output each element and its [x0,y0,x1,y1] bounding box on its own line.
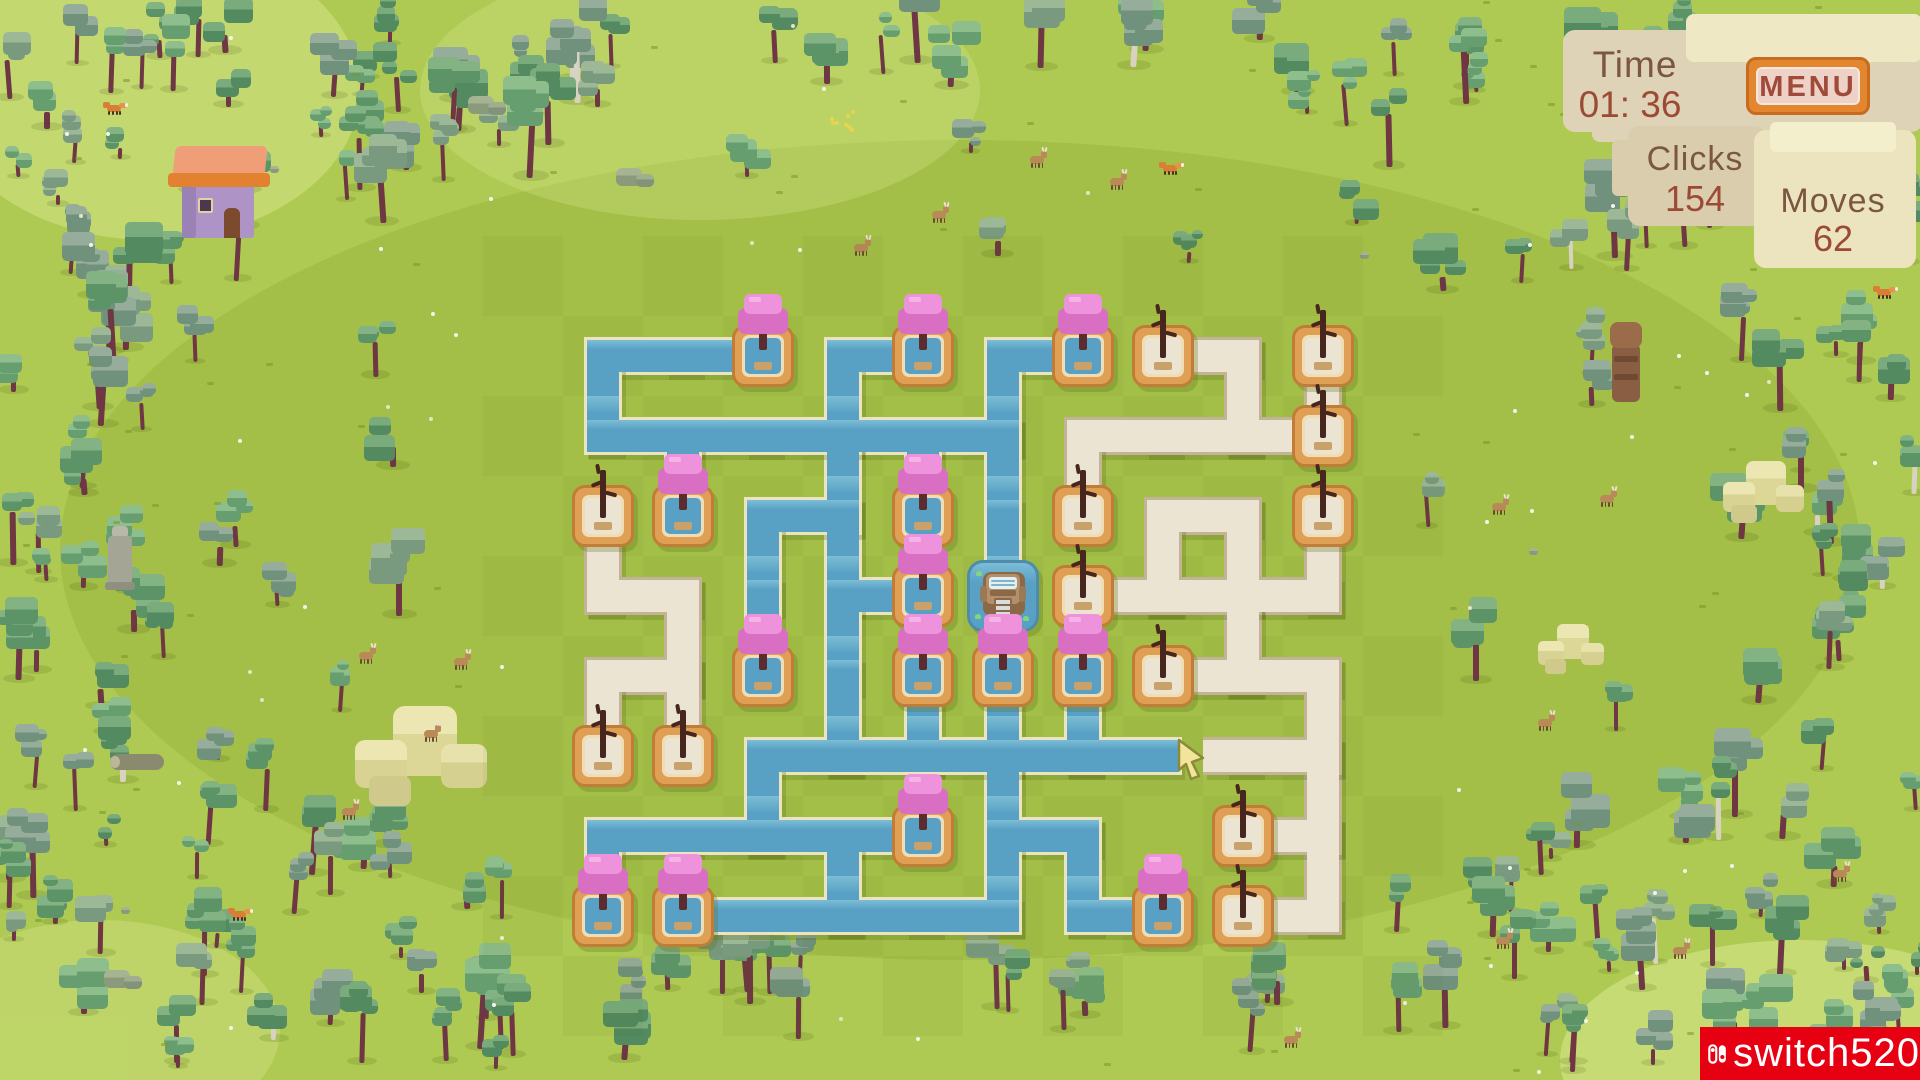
tree-canopy [1723,994,1744,1011]
shape [1614,356,1638,362]
tree-canopy [6,911,26,929]
fox-leg [108,111,110,115]
tree-canopy [162,14,190,39]
grass-tuft [187,614,194,617]
tree-canopy [1510,909,1531,926]
pipe-fill [747,580,779,612]
pipe-fill [1147,500,1179,532]
planter-soil [594,522,612,530]
pipe-cell[interactable] [803,556,883,636]
tree-trunk [1512,937,1517,979]
tree-canopy [1882,964,1904,981]
pipe-cell[interactable] [1203,556,1283,636]
grass-tuft [1495,39,1502,42]
tree-canopy [1842,320,1871,342]
tree-canopy [970,137,981,146]
bloom-highlight [749,617,761,622]
tree-canopy [98,716,131,740]
pipe-cell[interactable] [963,796,1043,876]
pipe-cell[interactable] [1203,636,1283,716]
tree-canopy [345,106,366,122]
tree-canopy [439,119,457,132]
dead-tree-cell [1043,476,1123,556]
dead-tree-cell [643,716,723,796]
planter-soil [1074,682,1092,690]
pipe-fill [827,820,859,852]
tree-canopy [1820,523,1838,537]
flower [79,214,83,218]
checker-cell [483,236,563,316]
pipe-cell[interactable] [963,396,1043,476]
pipe-cell[interactable] [1043,796,1123,876]
pipe-cell[interactable] [643,556,723,636]
deer-head [1295,1031,1301,1038]
deer-head [1503,498,1509,505]
grass-tuft [358,425,365,428]
deer-leg [350,815,352,820]
deer-leg [1285,1043,1287,1048]
grass-tuft [99,811,106,814]
tree-trunk [1490,915,1496,937]
pipe-cell[interactable] [1203,316,1283,396]
pipe-cell[interactable] [1283,636,1363,716]
grass-tuft [35,919,42,922]
fox-leg [1164,171,1166,175]
tree-canopy [1463,857,1492,878]
pipe-cell[interactable] [723,876,803,956]
tree-canopy [1850,958,1864,968]
pipe-cell[interactable] [803,396,883,476]
deer-leg [1546,726,1548,731]
grass-tuft [1483,441,1490,444]
flower [1677,354,1681,358]
pipe-cell[interactable] [803,476,883,556]
tree-canopy [550,19,574,38]
tree-canopy [177,305,198,323]
house-wall-shade [182,184,196,238]
tree-canopy [1593,938,1610,951]
fox-leg [1172,171,1174,175]
tree-canopy [124,29,143,44]
pump-rung [996,610,1010,612]
pipe-cell[interactable] [1203,476,1283,556]
tree-trunk [195,852,199,879]
tree-trunk [1651,1049,1655,1065]
tree-canopy [369,134,398,160]
bloom-highlight [909,777,921,782]
planter-soil [1074,362,1092,370]
tree-trunk [609,34,614,67]
tree-canopy [1472,876,1505,904]
fox-leg [1882,295,1884,299]
pipe-fill [587,580,619,612]
deer-leg [1539,726,1541,731]
tree-canopy [165,41,185,57]
flower [1468,606,1472,610]
tree-canopy [98,827,112,839]
tree-canopy [400,70,417,83]
bloom-trunk [919,572,927,590]
statue-body [108,536,132,584]
tree-canopy [1121,0,1153,25]
tree-trunk [824,65,830,84]
pipe-cell[interactable] [883,876,963,956]
deer-leg [1118,185,1120,190]
pipe-fill [907,900,939,932]
checker-cell [1043,956,1123,1036]
watermark-text: switch520 [1733,1031,1920,1076]
house-roof-band [168,173,270,187]
planter-soil [914,522,932,530]
switch-logo-icon [1708,1032,1727,1076]
bloom-tree-cell [883,316,963,396]
pipe-fill [747,740,779,772]
tree-canopy [1592,884,1608,896]
rock [488,102,506,115]
dead-tree-cell [1203,796,1283,876]
fox-head [1159,162,1166,168]
pipe-cell[interactable] [1043,876,1123,956]
house-door [224,208,240,238]
tree-canopy [1828,469,1845,482]
bloom-trunk [919,332,927,350]
pipe-cell[interactable] [1123,476,1203,556]
grass-tuft [87,363,94,366]
tree-trunk [327,856,332,895]
bloom-highlight [1069,297,1081,302]
tree-canopy [91,327,111,344]
deer-head [1041,151,1047,158]
tree-canopy [254,993,273,1007]
grass-tuft [1271,1050,1278,1053]
tree-trunk [1614,701,1618,731]
tree-trunk [80,479,87,495]
grass-tuft [1249,69,1256,72]
deer-leg [1493,510,1495,515]
pipe-cell[interactable] [1283,876,1363,956]
tree-canopy [224,0,253,23]
pump-screen-line [991,580,1015,582]
grass-tuft [1484,957,1491,960]
grass-tuft [113,521,120,524]
pipe-cell[interactable] [1203,396,1283,476]
rock [636,174,654,187]
grass-tuft [152,504,159,507]
flower [386,405,390,409]
pipe-cell[interactable] [803,876,883,956]
tree-canopy [1813,718,1833,735]
tree-canopy [1742,289,1757,302]
pipe-fill [667,820,699,852]
pipe-fill [827,740,859,772]
dead-tree-cell [563,476,643,556]
pipe-cell[interactable] [1043,716,1123,796]
tree-trunk [72,768,78,811]
fox-head [228,908,235,914]
tree-canopy [1632,907,1653,925]
deer-leg [1508,944,1510,949]
flower [260,698,264,702]
tree-canopy [262,562,287,580]
tree-trunk [108,50,114,93]
fox-leg [1886,295,1888,299]
tree-canopy [1817,480,1844,501]
deer-head [1121,173,1127,180]
planter-soil [754,362,772,370]
tree-trunk [1473,639,1479,681]
pipe-cell[interactable] [803,796,883,876]
tree-canopy [879,12,892,23]
grass-tuft [75,157,82,160]
planter-soil [1074,522,1092,530]
tree-canopy [202,781,219,796]
boulder [1545,659,1566,674]
tree-canopy [1340,180,1361,195]
tree-canopy [1605,681,1622,694]
pipe-cell[interactable] [1123,556,1203,636]
tree-canopy [952,21,982,45]
dead-tree-cell [1283,476,1363,556]
pipe-fill [667,580,699,612]
tree-canopy [1586,307,1605,322]
tree-trunk [494,1055,498,1070]
tree-canopy [76,752,94,769]
tree-canopy [231,69,252,88]
clicks-value: 154 [1632,178,1758,220]
tree-canopy [1819,601,1845,623]
pipe-cell[interactable] [563,556,643,636]
tree-trunk [394,77,401,113]
fox-leg [1175,171,1177,175]
planter-soil [1314,522,1332,530]
tree-canopy [182,836,195,847]
pipe-fill [987,340,1019,372]
checker-cell [963,236,1043,316]
planter-soil [1154,362,1172,370]
tree-canopy [1572,1004,1588,1018]
flower [750,241,754,245]
deer-head [1844,865,1850,872]
bloom-trunk [1079,652,1087,670]
bloom-trunk [679,492,687,510]
puzzle-grid [563,316,1363,956]
pipe-fill [1067,420,1099,452]
pipe-fill [747,900,779,932]
pipe-cell[interactable] [723,396,803,476]
game-scene: Time 01: 36 MENU Clicks 154 Moves 62 swi… [0,0,1920,1080]
flower [500,665,504,669]
tree-canopy [18,512,35,525]
tree-canopy [107,814,121,825]
tree-trunk [1386,114,1393,167]
bloom-trunk [1159,892,1167,910]
deer-leg [1681,954,1683,959]
bloom-tree-cell [563,876,643,956]
pipe-cell[interactable] [563,396,643,476]
tree-canopy [1867,556,1887,572]
fox-leg [1168,171,1170,175]
deer-leg [1111,185,1113,190]
pipe-cell[interactable] [563,636,643,716]
pipe-fill [827,900,859,932]
tree-canopy [579,0,606,21]
tree-canopy [199,522,220,541]
pipe-cell[interactable] [963,876,1043,956]
tree-canopy [928,25,950,43]
checker-cell [1363,476,1443,556]
tree-canopy [1759,974,1793,1003]
yellow-flower [831,121,835,125]
tree-trunk [9,512,15,565]
sparkle [1023,616,1029,621]
pipe-fill [1307,740,1339,772]
checker-cell [1123,236,1203,316]
pipe-cell[interactable] [963,716,1043,796]
pipe-cell[interactable] [1043,396,1123,476]
log-end [110,756,120,768]
tree-canopy [1247,0,1273,6]
pipe-fill [667,660,699,692]
bloom-tree-cell [723,316,803,396]
tree-canopy [1752,329,1779,354]
tree-canopy [81,541,99,556]
planter-soil [754,682,772,690]
bloom-tree-cell [1043,316,1123,396]
tree-canopy [1505,239,1525,253]
menu-button[interactable]: MENU [1746,57,1870,115]
tree-canopy [503,76,536,105]
deer-leg [425,737,427,742]
pipe-fill [1067,740,1099,772]
flower [916,1037,920,1041]
tree-canopy [485,860,503,876]
tree-canopy [2,493,23,512]
fox-tail-tip [250,909,253,913]
tree-canopy [512,35,529,49]
dead-tree-cell [1123,636,1203,716]
pipe-cell[interactable] [1283,556,1363,636]
tree-canopy [883,25,900,37]
bloom-highlight [589,857,601,862]
tree-canopy [120,505,143,523]
tree-canopy [1827,938,1849,956]
bloom-highlight [909,537,921,542]
flower [1457,788,1461,792]
pipe-cell[interactable] [1203,716,1283,796]
checker-cell [483,716,563,796]
pipe-fill [987,740,1019,772]
pipe-cell[interactable] [963,476,1043,556]
pipe-fill [587,420,619,452]
checker-cell [1363,796,1443,876]
deer-head [370,647,376,654]
checker-cell [643,236,723,316]
deer-leg [462,665,464,670]
tree-canopy [1684,771,1701,785]
tree-canopy [43,875,58,886]
tree-canopy [1884,540,1900,554]
deer-leg [1296,1043,1298,1048]
fox-leg [1889,295,1891,299]
pipe-cell[interactable] [803,316,883,396]
tree-canopy [759,6,780,23]
pipe-cell[interactable] [1123,396,1203,476]
flower [1537,1070,1541,1074]
bloom-tree-cell [643,876,723,956]
tree-canopy [0,354,22,373]
pipe-cell[interactable] [803,716,883,796]
fox-leg [237,917,239,921]
grass-tuft [651,46,658,49]
pipe-cell[interactable] [723,716,803,796]
tree-canopy [255,738,274,753]
flower [1767,380,1771,384]
pipe-cell[interactable] [723,796,803,876]
tree-canopy [1821,827,1855,852]
tree-trunk [545,101,552,145]
time-value: 01: 36 [1570,84,1690,126]
tree-canopy [73,415,90,429]
checker-cell [1363,316,1443,396]
tree-canopy [1745,887,1765,902]
time-label: Time [1583,44,1687,86]
pipe-cell[interactable] [963,316,1043,396]
pipe-fill [747,500,779,532]
flower [822,87,826,91]
tree-canopy [1497,856,1518,874]
pipe-fill [667,420,699,452]
tree-canopy [364,435,394,462]
pipe-cell[interactable] [803,636,883,716]
pipe-cell[interactable] [563,316,643,396]
fox-leg [116,111,118,115]
grass-tuft [1687,1032,1694,1035]
deer-leg [1834,877,1836,882]
pipe-cell[interactable] [643,316,723,396]
planter-soil [1314,442,1332,450]
totem-body [1612,344,1640,402]
planter-soil [1154,922,1172,930]
tree-trunk [1777,365,1784,411]
deer-head [465,653,471,660]
pipe-cell[interactable] [723,476,803,556]
tree-trunk [442,1024,448,1062]
pipe-cell[interactable] [1283,796,1363,876]
yellow-flower [850,128,854,132]
bloom-highlight [909,297,921,302]
tree-canopy [125,222,163,255]
pipe-cell[interactable] [643,636,723,716]
flower [1489,964,1493,968]
tree-canopy [5,597,38,624]
pipe-fill [1307,820,1339,852]
grass-tuft [207,382,214,385]
tree-canopy [1427,940,1448,956]
tree-canopy [37,506,60,526]
tree-canopy [86,271,116,298]
pipe-cell[interactable] [1283,716,1363,796]
tree-canopy [1824,999,1844,1015]
grass-tuft [133,788,140,791]
deer-head [1611,490,1617,497]
deer-leg [360,659,362,664]
pipe-fill [1067,900,1099,932]
tree-trunk [1834,341,1839,356]
bloom-tree-cell [883,636,963,716]
fox-leg [233,917,235,921]
fox-leg [244,917,246,921]
deer-head [435,725,441,732]
